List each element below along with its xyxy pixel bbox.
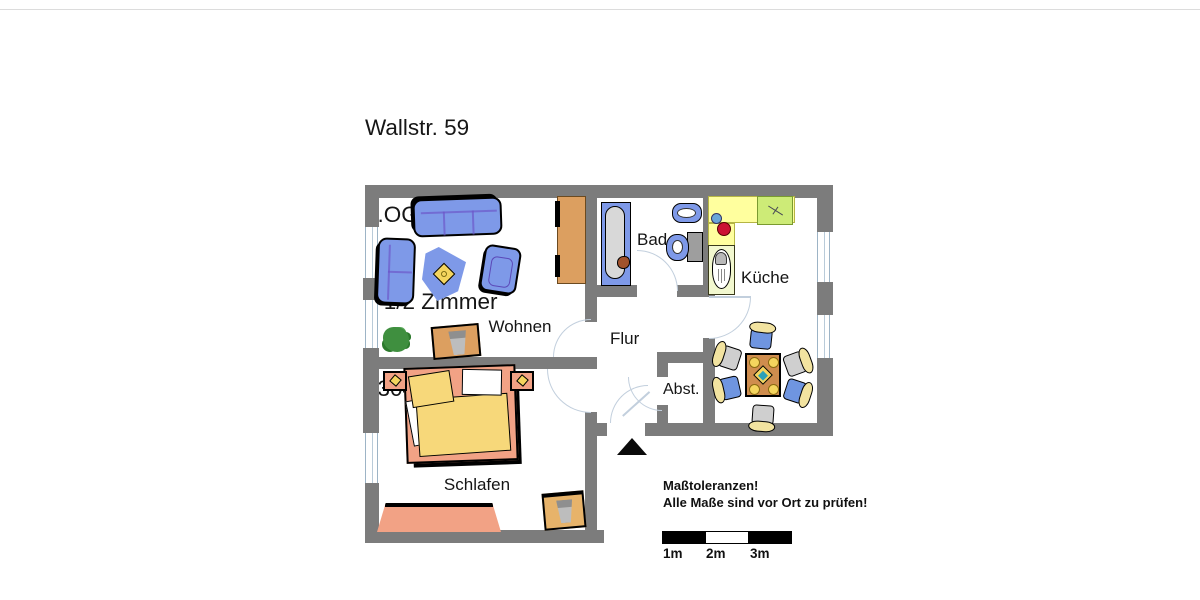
kitchen-sink-unit <box>708 245 735 295</box>
armchair <box>479 243 523 295</box>
bathroom-sink <box>672 203 702 223</box>
room-label-wohnen: Wohnen <box>460 317 580 337</box>
dining-chair <box>717 344 743 371</box>
pillow <box>462 369 502 396</box>
dining-chair <box>782 377 808 404</box>
wall-exterior-bottom-right <box>645 423 830 436</box>
dining-chair <box>749 328 773 350</box>
window <box>365 433 378 483</box>
bathtub <box>601 202 631 286</box>
dining-chair <box>751 404 774 425</box>
door-arc-kueche <box>709 297 751 339</box>
room-label-schlafen: Schlafen <box>417 475 537 495</box>
door-leaf-kueche <box>709 296 751 298</box>
room-label-bad: Bad <box>637 230 667 250</box>
entrance-marker-icon <box>617 438 647 455</box>
scan-artifact-line <box>0 9 1200 10</box>
tolerance-note-line2: Alle Maße sind vor Ort zu prüfen! <box>663 495 867 512</box>
scale-segment-black <box>663 532 706 543</box>
wall-abst-left <box>657 352 668 377</box>
scale-label-3m: 3m <box>750 546 770 561</box>
wall-wohnen-flur <box>585 196 597 322</box>
nightstand <box>510 371 534 391</box>
scale-label-2m: 2m <box>706 546 726 561</box>
bathtub-faucet <box>617 256 630 269</box>
rug <box>377 503 501 532</box>
wardrobe <box>557 196 586 284</box>
wall-exterior-left <box>365 185 379 227</box>
dresser <box>541 490 586 531</box>
scale-segment-white <box>706 532 749 543</box>
wall-schlafen-flur <box>585 412 597 543</box>
dining-chair <box>718 375 742 401</box>
room-label-kueche: Küche <box>741 268 789 288</box>
room-label-abst: Abst. <box>663 381 699 399</box>
plant <box>383 327 409 352</box>
double-bed <box>403 364 518 464</box>
tolerance-note-line1: Maßtoleranzen! <box>663 478 867 495</box>
room-label-flur: Flur <box>610 329 639 349</box>
door-arc-entry <box>610 385 648 423</box>
toilet <box>666 234 689 261</box>
nightstand <box>383 371 407 391</box>
window <box>817 232 830 282</box>
window <box>365 300 378 348</box>
stove <box>757 196 793 225</box>
wall-exterior-right <box>817 185 833 232</box>
scale-label-1m: 1m <box>663 546 683 561</box>
wall-bad-flur <box>597 285 637 297</box>
duvet-fold <box>408 370 454 408</box>
scale-segment-black <box>748 532 791 543</box>
toilet-tank <box>687 232 703 262</box>
wall-bad-flur <box>677 285 703 297</box>
sofa-three-seat <box>412 196 502 237</box>
hob-red-dot <box>717 222 731 236</box>
dining-chair <box>782 350 808 378</box>
door-arc-schlafen <box>547 369 591 413</box>
floorplan-canvas: Wallstr. 59 1.OG links 2 1/2 Zimmer 9304… <box>0 0 1200 600</box>
dining-table <box>745 353 781 397</box>
scale-bar <box>662 531 792 544</box>
window <box>817 315 830 358</box>
wall-exterior-right <box>817 282 833 315</box>
tolerance-note: Maßtoleranzen! Alle Maße sind vor Ort zu… <box>663 478 867 511</box>
title-address: Wallstr. 59 <box>365 113 498 142</box>
sofa-two-seat <box>376 237 416 304</box>
